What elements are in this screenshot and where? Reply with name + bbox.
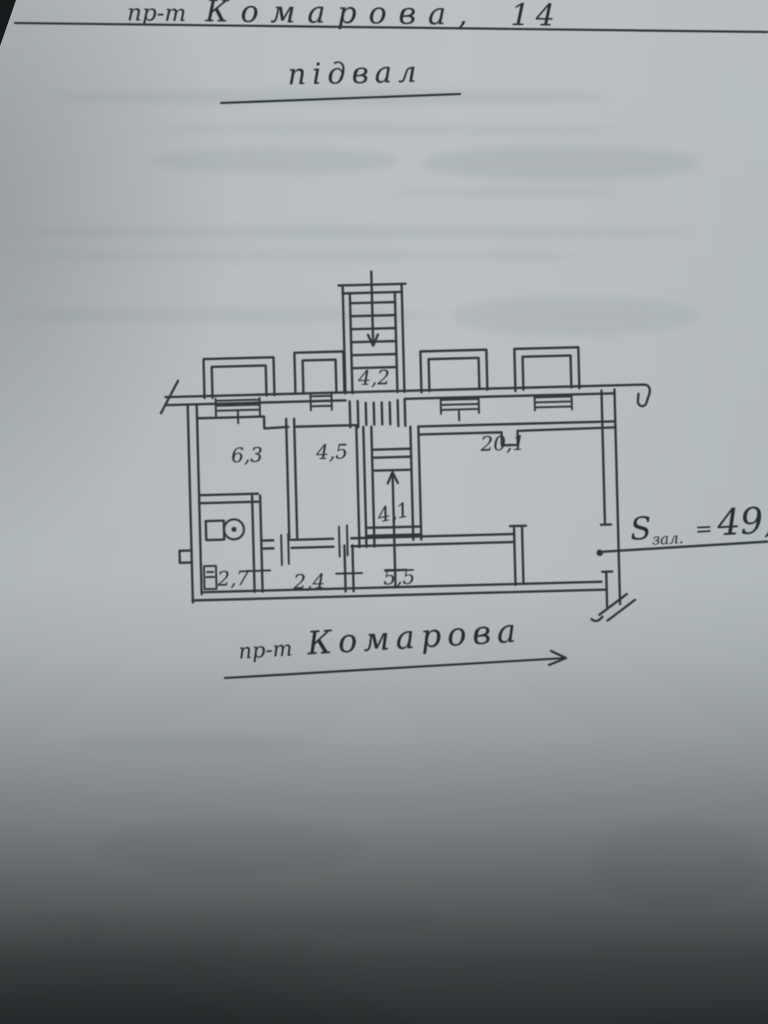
title-underline [15,23,768,32]
floor-label-underline [221,94,460,103]
room-area-label: 2,4 [292,569,325,594]
exterior-stub [180,550,192,562]
window-bay [420,350,487,393]
ink-layer: пр-т Комарова, 14 підвал Sзал. =49, пр-т… [0,0,768,1024]
window-bay [514,347,579,391]
stair-treads [372,449,412,471]
floor-plan-lines: 4,2 6,3 4,5 20,1 4,1 2,7 2,4 5,5 [157,261,768,632]
door-threshold [336,573,362,574]
floor-plan-drawing: 4,2 6,3 4,5 20,1 4,1 2,7 2,4 5,5 [0,0,768,1024]
window-bay [294,351,344,393]
window-sill [216,398,261,424]
facade-right-hook [637,384,650,406]
room-area-label: 20,1 [479,431,525,456]
toilet-drain-dot [231,527,236,532]
room-area-label: 6,3 [231,443,263,468]
room-area-label: 4,1 [374,497,411,527]
leader-dot [596,550,603,557]
toilet-icon [206,519,245,540]
stairs-down-arrow-icon [366,272,378,346]
door-jamb-ticks [339,525,348,556]
photographed-floor-plan-page: { "document": { "title": { "prefix": "пр… [0,0,768,1024]
toilet-tank [206,521,224,540]
room-area-label: 4,5 [315,439,348,464]
door-threshold [247,570,270,571]
room-area-label: 5,5 [383,565,415,590]
street-underline-arrow [225,658,566,678]
leader-line [596,541,768,556]
window-sill [535,394,572,410]
door-jamb-ticks [281,534,289,565]
window-sill [441,397,480,421]
opening-hatch [366,402,391,425]
room-area-label: 4,2 [357,365,390,390]
room-area-label: 2,7 [216,566,250,591]
stair-entry [350,400,406,427]
fixture-box [204,566,217,589]
window-bay [204,357,275,398]
wall-break-marks [591,594,636,621]
